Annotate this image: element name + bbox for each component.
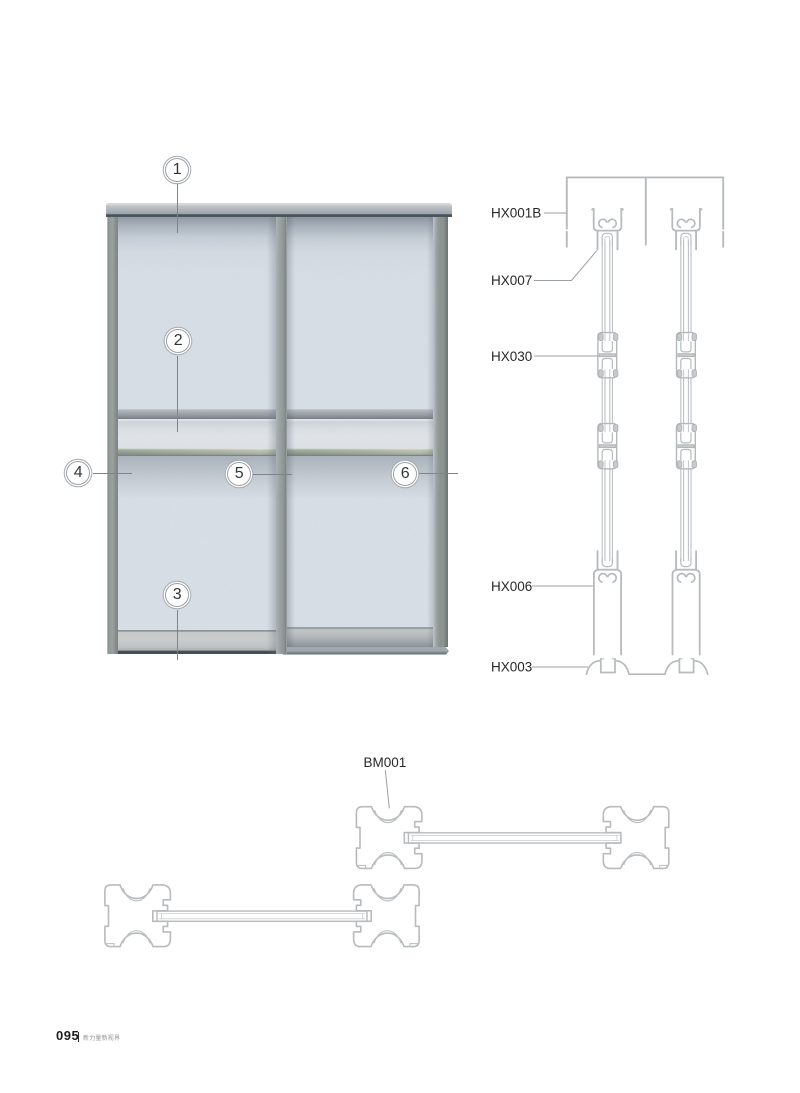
svg-text:HX030: HX030 [491, 349, 532, 364]
svg-text:HX001B: HX001B [491, 206, 541, 221]
svg-text:HX003: HX003 [491, 660, 532, 675]
svg-text:BM001: BM001 [364, 755, 407, 770]
svg-text:HX007: HX007 [491, 273, 532, 288]
svg-text:HX006: HX006 [491, 579, 532, 594]
